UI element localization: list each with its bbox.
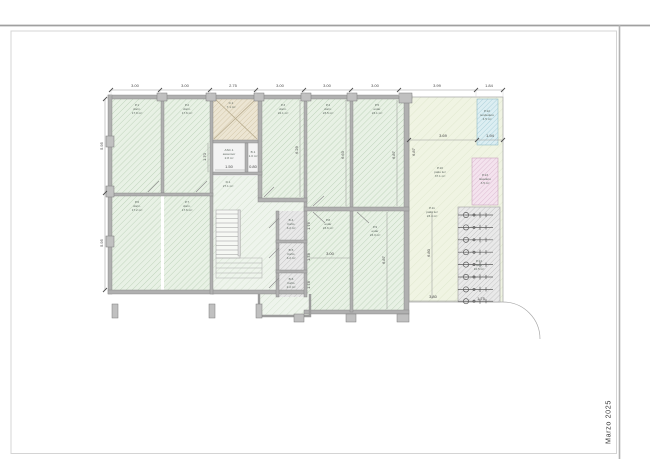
stair-rail — [238, 210, 240, 256]
dim-label: 3.00 — [326, 251, 335, 256]
drawing-sheet: Marzo 2025 — [0, 0, 650, 459]
dim-label: 3.99 — [433, 83, 442, 88]
room-p12 — [477, 99, 498, 145]
room-p9 — [353, 211, 404, 310]
room-label: 10.5 m² — [474, 267, 485, 271]
dim-label: 6.80 — [426, 248, 431, 257]
dim-label: 1.78 — [306, 252, 311, 261]
dim-label: 6.87 — [391, 150, 396, 159]
room-label: 3.5 m² — [481, 181, 490, 185]
room-label: 17.6 m² — [182, 111, 193, 115]
floor-plan-canvas: Marzo 2025 — [0, 0, 650, 459]
dim-label: 5.95 — [99, 141, 104, 150]
room-label: 22.1 m² — [278, 111, 289, 115]
dim-label: 3.00 — [371, 83, 380, 88]
room-label: 37.1 m² — [435, 174, 446, 178]
dim-label: 6.87 — [381, 255, 386, 264]
dim-label: 3.00 — [323, 83, 332, 88]
dim-label: 3.00 — [181, 83, 190, 88]
room-label: 1.0 m² — [249, 154, 258, 158]
dim-label: 1.94 — [486, 133, 495, 138]
dim-label: 1.76 — [306, 221, 311, 230]
room-label: 4.5 m² — [483, 117, 492, 121]
dim-label: 2.75 — [229, 83, 238, 88]
room-label: 27.1 m² — [223, 184, 234, 188]
room-label: 2.8 m² — [225, 156, 234, 160]
gate-swing-arc — [503, 302, 540, 339]
sheet-date-label: Marzo 2025 — [604, 400, 613, 444]
room-label: 17.9 m² — [132, 111, 143, 115]
detached-column — [112, 304, 118, 318]
room-label: 23.5 m² — [323, 111, 334, 115]
dim-label: 6.87 — [411, 147, 416, 156]
dim-label: 1.50 — [225, 164, 234, 169]
dim-label: 3.80 — [429, 294, 438, 299]
dim-label: 6.29 — [294, 145, 299, 154]
room-p5 — [353, 99, 404, 207]
room-label: 2.2 m² — [287, 285, 296, 289]
room-label: 23.1 m² — [372, 111, 383, 115]
dim-label: 3.69 — [439, 133, 448, 138]
dim-label: 3.00 — [276, 83, 285, 88]
dim-label: 5.95 — [99, 238, 104, 247]
room-label: 3.2 m² — [287, 256, 296, 260]
room-label: 17.6 m² — [182, 208, 193, 212]
room-label: 23.3 m² — [370, 233, 381, 237]
entrance-vestibule — [259, 294, 310, 316]
dim-label: 3.00 — [131, 83, 140, 88]
room-label: 23.4 m² — [427, 214, 438, 218]
detached-column — [256, 304, 262, 318]
room-label: 7.1 m² — [227, 105, 236, 109]
room-label: 23.6 m² — [323, 226, 334, 230]
room-label: 3.2 m² — [287, 226, 296, 230]
dim-label: 0.80 — [249, 164, 258, 169]
dim-label: 1.75 — [477, 296, 486, 301]
dim-label: 1.84 — [485, 83, 494, 88]
dim-label: 6.63 — [340, 150, 345, 159]
detached-column — [209, 304, 215, 318]
dim-label: 1.78 — [306, 280, 311, 289]
room-label: 17.2 m² — [132, 208, 143, 212]
dim-label: 1.70 — [202, 152, 207, 161]
